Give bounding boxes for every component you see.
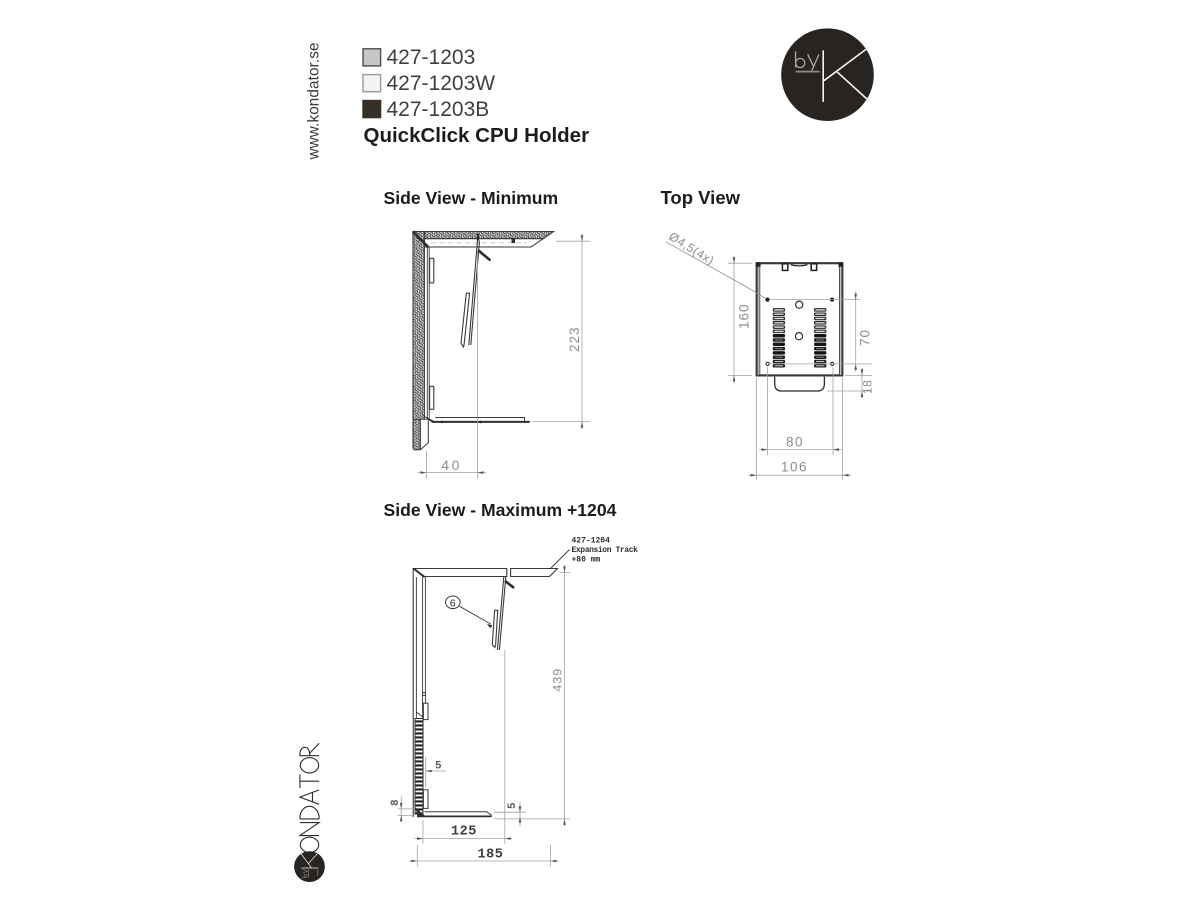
svg-text:5: 5 xyxy=(507,802,519,809)
svg-text:223: 223 xyxy=(567,326,582,352)
svg-text:Expansion Track: Expansion Track xyxy=(572,546,639,555)
svg-text:40: 40 xyxy=(441,457,462,473)
svg-text:8: 8 xyxy=(390,799,402,806)
svg-text:106: 106 xyxy=(781,460,808,475)
svg-text:6: 6 xyxy=(450,598,456,610)
svg-text:427-1203W: 427-1203W xyxy=(387,72,496,95)
svg-text:80: 80 xyxy=(786,435,804,450)
svg-text:70: 70 xyxy=(858,329,873,346)
svg-text:427-1203B: 427-1203B xyxy=(387,98,490,121)
svg-text:Top View: Top View xyxy=(661,187,741,208)
svg-text:427-1203: 427-1203 xyxy=(387,46,476,69)
svg-text:Side View - Maximum +1204: Side View - Maximum +1204 xyxy=(384,500,617,520)
svg-text:439: 439 xyxy=(552,668,566,692)
svg-text:160: 160 xyxy=(737,303,752,329)
svg-text:+80 mm: +80 mm xyxy=(572,556,601,565)
svg-text:18: 18 xyxy=(861,380,875,394)
svg-text:125: 125 xyxy=(451,825,477,840)
svg-text:Side View - Minimum: Side View - Minimum xyxy=(384,188,559,208)
svg-text:185: 185 xyxy=(478,848,504,863)
svg-text:www.kondator.se: www.kondator.se xyxy=(306,42,323,160)
svg-text:QuickClick CPU Holder: QuickClick CPU Holder xyxy=(364,124,590,147)
svg-text:5: 5 xyxy=(435,761,442,773)
svg-text:427-1204: 427-1204 xyxy=(572,537,611,546)
